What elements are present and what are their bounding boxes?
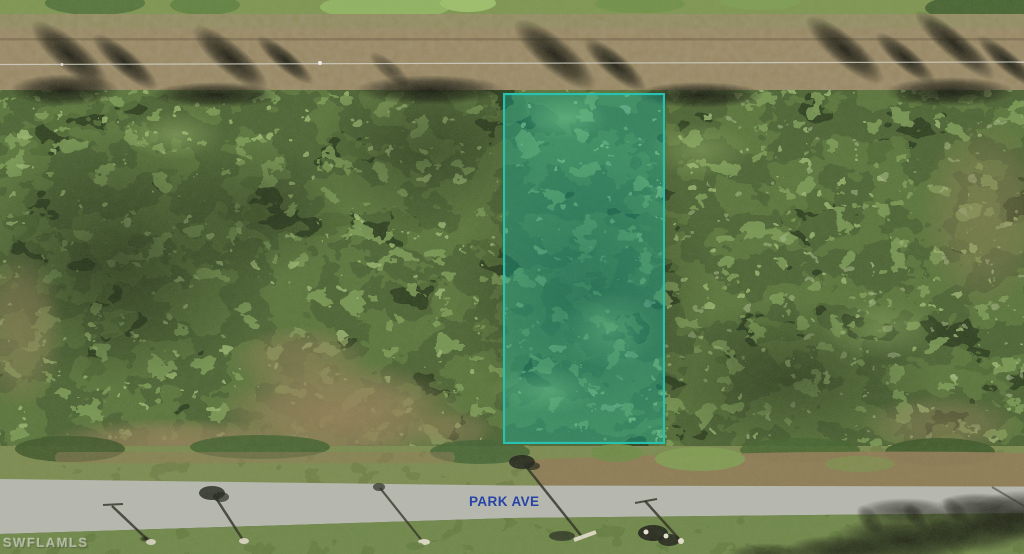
- street-name-label: PARK AVE: [469, 494, 539, 509]
- mls-watermark: SWFLAMLS: [3, 535, 89, 550]
- parcel-boundary: [503, 93, 665, 444]
- aerial-listing-photo: PARK AVE SWFLAMLS: [0, 0, 1024, 554]
